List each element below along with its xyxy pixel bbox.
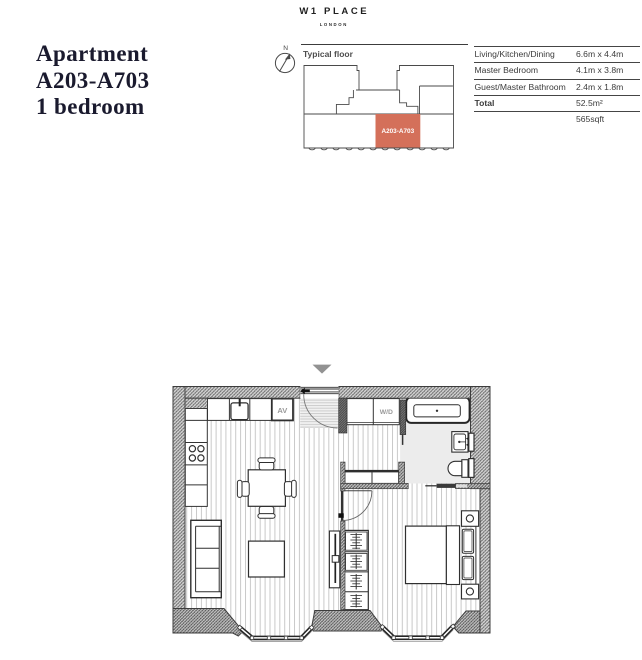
- svg-text:W/D: W/D: [380, 409, 393, 416]
- svg-text:A203-A703: A203-A703: [381, 128, 414, 135]
- svg-text:N: N: [283, 45, 288, 52]
- svg-text:AV: AV: [277, 406, 288, 415]
